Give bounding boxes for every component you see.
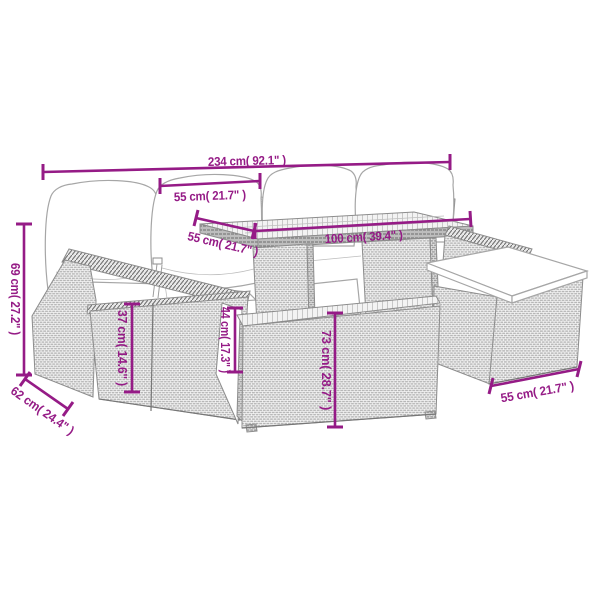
armrest-face (32, 260, 96, 397)
dim-backrest-height-label: 69 cm( 27.2" ) (8, 263, 22, 335)
dim-overall-width-label: 234 cm( 92.1" ) (208, 153, 286, 169)
back-rail-line (309, 256, 361, 261)
dimension-diagram: 234 cm( 92.1" ) 55 cm( 21.7" ) 55 cm( 21… (0, 0, 600, 600)
diagram-canvas: 234 cm( 92.1" ) 55 cm( 21.7" ) 55 cm( 21… (0, 0, 600, 600)
dim-seat-width-label: 55 cm( 21.7" ) (174, 188, 246, 205)
dim-backrest-height: 69 cm( 27.2" ) (8, 224, 32, 375)
dim-table-height-label: 73 cm( 28.7" ) (319, 330, 333, 410)
footstool-left-face (433, 286, 497, 384)
footstool (427, 247, 587, 384)
table-pedestal (237, 296, 440, 432)
dim-side-height-label: 44 cm( 17.3" ) (218, 307, 232, 373)
pedestal-front-face (242, 306, 440, 428)
dim-seat-height-label: 37 cm( 14.6" ) (115, 310, 129, 386)
